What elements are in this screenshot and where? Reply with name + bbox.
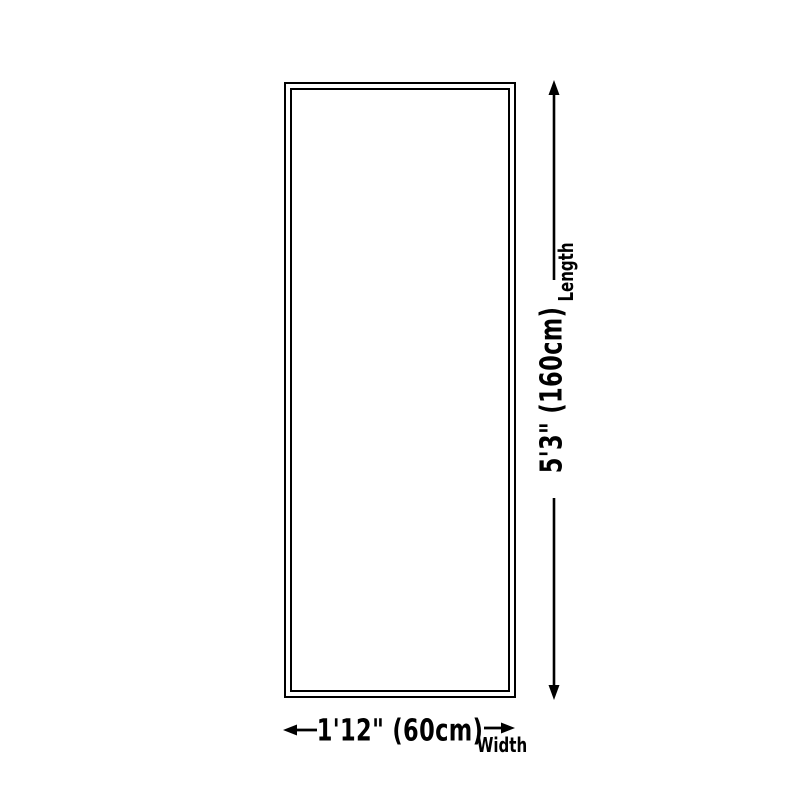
product-outline-inner-border [290,88,510,692]
length-arrow-down-icon [544,496,564,702]
width-arrow-left-icon [281,722,319,738]
product-outline [284,82,516,698]
dimension-diagram: 5'3" (160cm) Length 1'12" (60cm) Width [0,0,800,800]
length-label: Length [554,242,578,301]
width-value: 1'12" (60cm) [317,714,484,749]
width-label: Width [477,733,527,757]
length-value: 5'3" (160cm) [535,307,570,474]
